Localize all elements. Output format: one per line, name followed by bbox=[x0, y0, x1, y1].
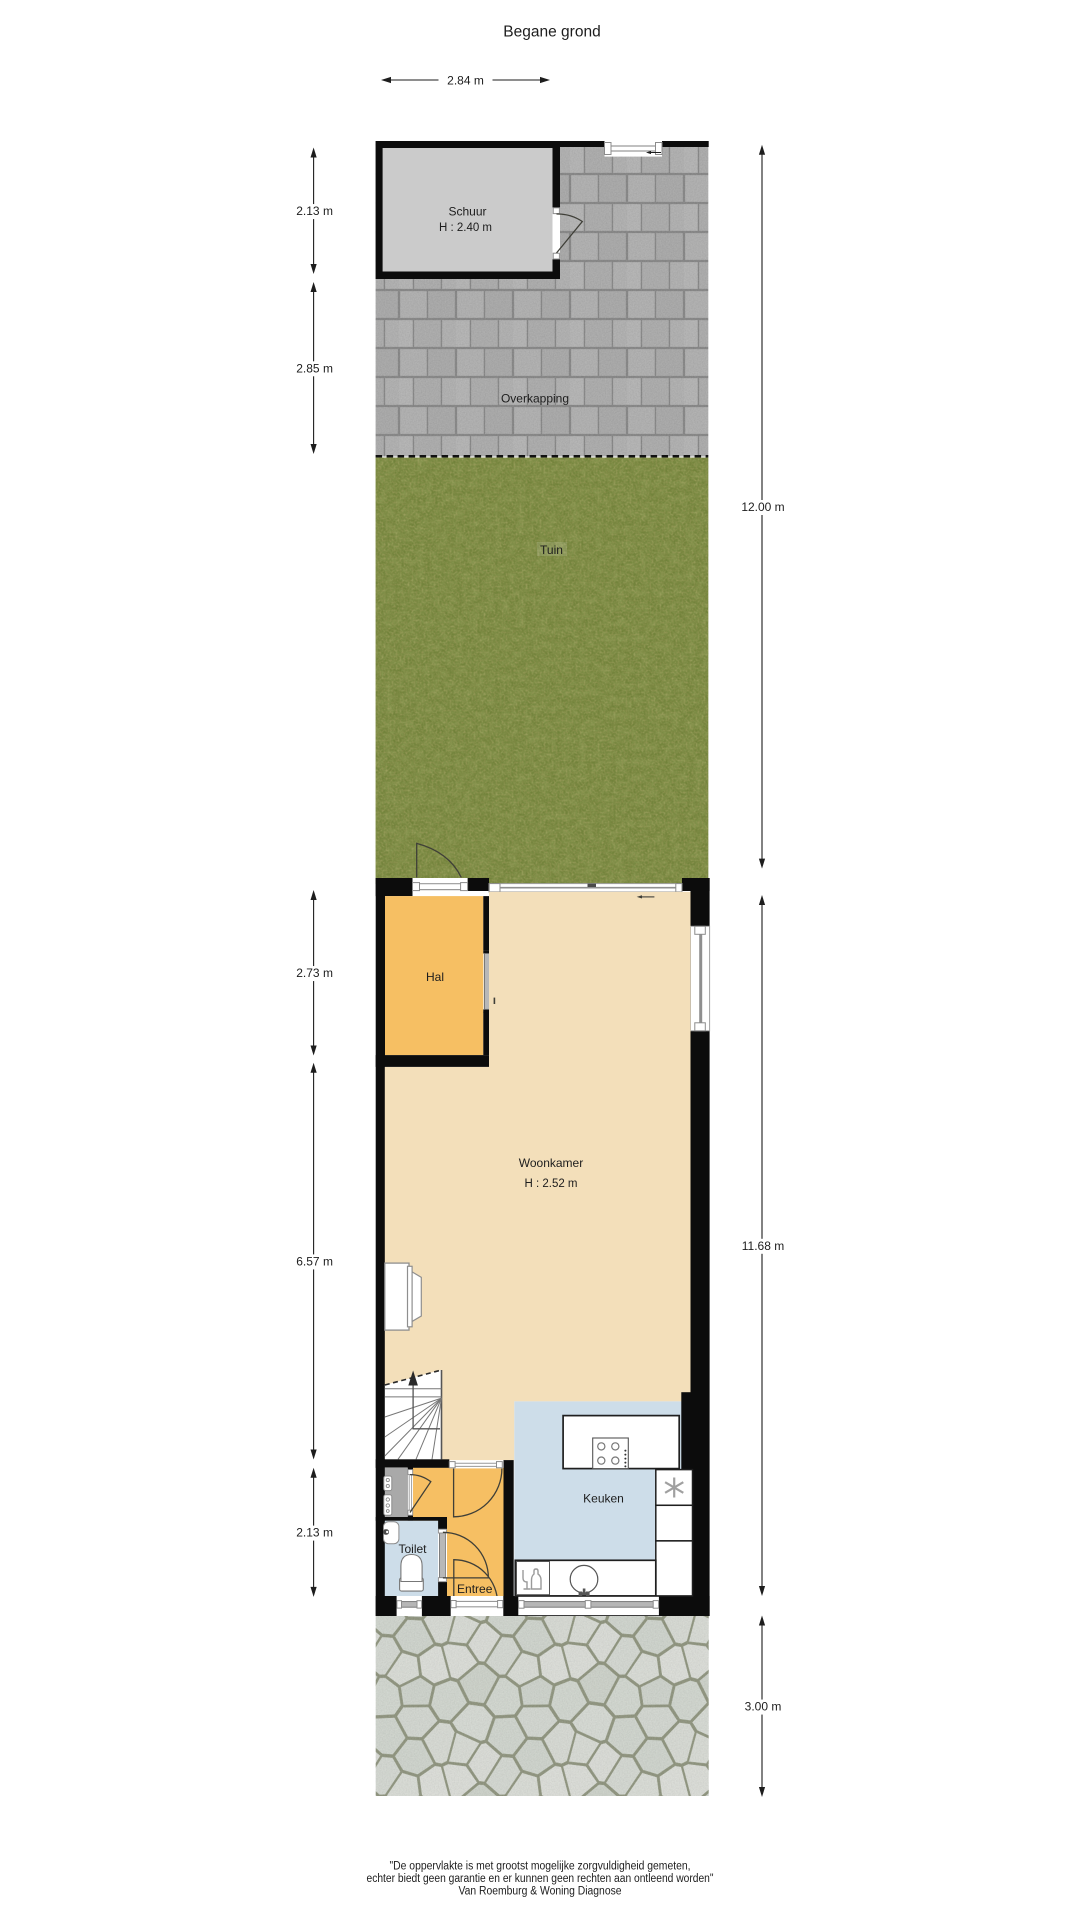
svg-text:Schuur: Schuur bbox=[448, 204, 486, 218]
svg-text:12.00 m: 12.00 m bbox=[741, 500, 784, 514]
svg-text:Begane grond: Begane grond bbox=[503, 24, 600, 41]
svg-text:11.68 m: 11.68 m bbox=[742, 1239, 784, 1253]
svg-text:2.85 m: 2.85 m bbox=[296, 361, 333, 375]
svg-text:2.13 m: 2.13 m bbox=[296, 1526, 333, 1540]
svg-text:Keuken: Keuken bbox=[583, 1492, 624, 1506]
svg-text:Hal: Hal bbox=[426, 970, 444, 984]
svg-text:2.84 m: 2.84 m bbox=[447, 73, 484, 87]
svg-text:Overkapping: Overkapping bbox=[501, 391, 569, 405]
svg-text:6.57 m: 6.57 m bbox=[296, 1254, 333, 1268]
svg-text:2.13 m: 2.13 m bbox=[296, 204, 333, 218]
svg-text:3.00 m: 3.00 m bbox=[745, 1700, 782, 1714]
svg-text:H : 2.52 m: H : 2.52 m bbox=[524, 1178, 577, 1190]
svg-text:Van Roemburg & Woning Diagnose: Van Roemburg & Woning Diagnose bbox=[459, 1885, 622, 1897]
svg-text:2.73 m: 2.73 m bbox=[296, 966, 333, 980]
svg-text:Tuin: Tuin bbox=[540, 543, 563, 557]
svg-text:echter biedt geen garantie en: echter biedt geen garantie en er kunnen … bbox=[367, 1873, 714, 1885]
svg-text:H : 2.40 m: H : 2.40 m bbox=[439, 222, 492, 234]
svg-text:Entree: Entree bbox=[457, 1582, 493, 1596]
svg-text:Woonkamer: Woonkamer bbox=[519, 1156, 583, 1170]
svg-text:Toilet: Toilet bbox=[398, 1542, 427, 1556]
svg-text:"De oppervlakte is met grootst: "De oppervlakte is met grootst mogelijke… bbox=[390, 1860, 691, 1872]
